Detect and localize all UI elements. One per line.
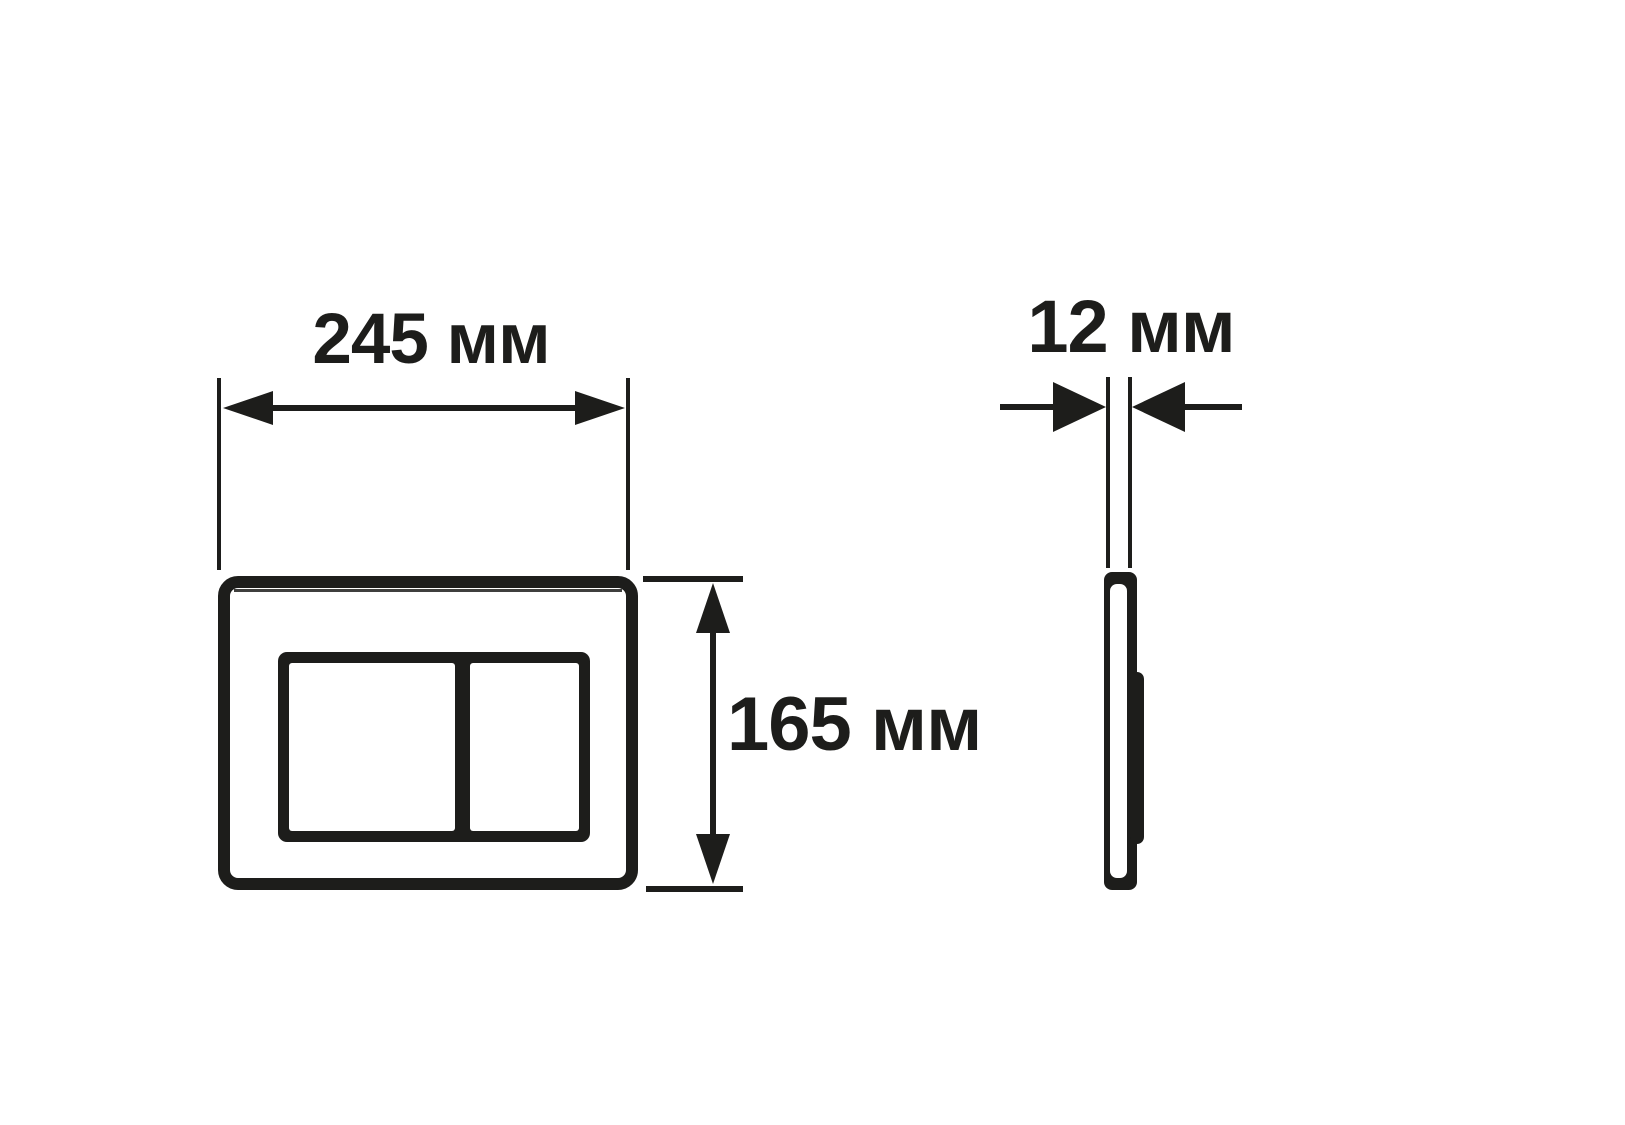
width-extension-line-right: [626, 378, 630, 570]
width-dimension-label: 245 мм: [225, 304, 637, 375]
arrowhead-left-icon: [1132, 382, 1185, 432]
flush-button-group: [278, 652, 590, 842]
thickness-extension-line-left: [1106, 377, 1110, 568]
flush-plate-front-view: [218, 576, 638, 890]
arrowhead-left-icon: [223, 391, 273, 425]
arrowhead-right-icon: [575, 391, 625, 425]
height-dimension-line: [710, 625, 716, 840]
thickness-dimension-line-right: [1182, 404, 1242, 410]
width-extension-line-left: [217, 378, 221, 570]
technical-drawing-canvas: 245 мм 12 мм 165 мм: [0, 0, 1625, 1125]
side-button-bulge: [1130, 672, 1144, 844]
width-dimension-line: [267, 405, 579, 411]
small-flush-button: [470, 663, 579, 831]
flush-plate-side-view: [1104, 572, 1137, 890]
height-extension-line-bottom: [646, 886, 743, 892]
height-dimension-label: 165 мм: [727, 687, 981, 763]
arrowhead-down-icon: [696, 834, 730, 884]
large-flush-button: [289, 663, 455, 831]
plate-top-edge-line: [234, 589, 622, 592]
thickness-dimension-line-left: [1000, 404, 1058, 410]
height-extension-line-top: [643, 576, 743, 582]
side-profile-slot: [1110, 584, 1127, 878]
arrowhead-right-icon: [1053, 382, 1106, 432]
thickness-dimension-label: 12 мм: [981, 290, 1281, 364]
